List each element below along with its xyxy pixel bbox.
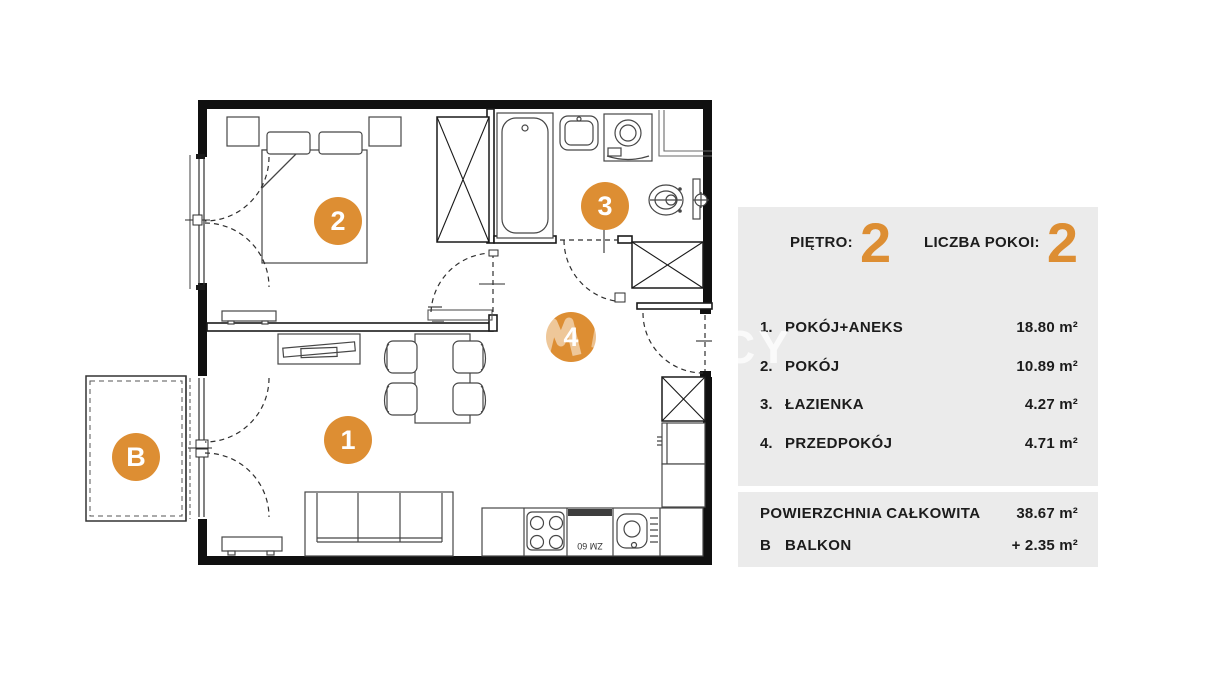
shaft-hall xyxy=(632,242,703,288)
living-room-door xyxy=(431,250,505,313)
wardrobe-closet xyxy=(437,117,489,242)
room-count-value: 2 xyxy=(1047,219,1078,267)
marker-room-2: 2 xyxy=(314,197,362,245)
svg-text:3: 3 xyxy=(597,191,612,221)
bathtub xyxy=(497,113,553,238)
room-row-1: 1. POKÓJ+ANEKS 18.80 m² xyxy=(760,308,1078,347)
fridge xyxy=(657,423,705,464)
floor-header: PIĘTRO: 2 xyxy=(790,219,891,267)
nightstands xyxy=(227,117,401,146)
bathroom-sink xyxy=(560,116,598,150)
shaft-kitchen xyxy=(662,377,705,421)
tall-cabinet xyxy=(662,464,705,507)
room-area: 18.80 m² xyxy=(1016,319,1078,336)
balcony-area: + 2.35 m² xyxy=(1012,537,1078,554)
total-area-row: POWIERZCHNIA CAŁKOWITA 38.67 m² xyxy=(760,497,1078,529)
svg-text:1: 1 xyxy=(340,425,355,455)
sofa xyxy=(305,492,453,556)
room-area: 10.89 m² xyxy=(1016,358,1078,375)
watermark-text: CY xyxy=(722,320,792,374)
floor-label: PIĘTRO: xyxy=(790,234,853,251)
rooms-list: 1. POKÓJ+ANEKS 18.80 m² 2. POKÓJ 10.89 m… xyxy=(760,308,1078,463)
room-row-2: 2. POKÓJ 10.89 m² xyxy=(760,347,1078,386)
balcony-letter: B xyxy=(760,537,785,554)
room-count-label: LICZBA POKOI: xyxy=(924,234,1040,251)
bench xyxy=(222,537,282,555)
total-area-value: 38.67 m² xyxy=(1016,505,1078,522)
marker-room-1: 1 xyxy=(324,416,372,464)
radiator xyxy=(222,311,276,324)
tv-cabinet xyxy=(278,334,360,364)
legend-panel: PIĘTRO: 2 LICZBA POKOI: 2 1. POKÓJ+ANEKS… xyxy=(738,207,1098,486)
summary-list: POWIERZCHNIA CAŁKOWITA 38.67 m² B BALKON… xyxy=(760,497,1078,561)
bedroom-window xyxy=(185,154,269,290)
room-number: 3. xyxy=(760,396,785,413)
room-name: ŁAZIENKA xyxy=(785,396,864,413)
room-count-header: LICZBA POKOI: 2 xyxy=(924,219,1078,267)
total-area-label: POWIERZCHNIA CAŁKOWITA xyxy=(760,505,980,522)
room-row-3: 3. ŁAZIENKA 4.27 m² xyxy=(760,385,1078,424)
entrance-door xyxy=(643,313,712,373)
svg-text:2: 2 xyxy=(330,206,345,236)
room-area: 4.27 m² xyxy=(1025,396,1078,413)
hall-sideboard xyxy=(428,307,492,321)
floor-value: 2 xyxy=(860,219,891,267)
toilet xyxy=(649,179,709,219)
balcony-row: B BALKON + 2.35 m² xyxy=(760,529,1078,561)
washing-machine xyxy=(604,114,652,161)
room-name: PRZEDPOKÓJ xyxy=(785,435,892,452)
bathroom-door xyxy=(560,227,626,302)
balcony-label: BALKON xyxy=(785,537,852,554)
summary-panel: POWIERZCHNIA CAŁKOWITA 38.67 m² B BALKON… xyxy=(738,492,1098,567)
marker-balcony: B xyxy=(112,433,160,481)
room-row-4: 4. PRZEDPOKÓJ 4.71 m² xyxy=(760,424,1078,463)
room-name: POKÓJ+ANEKS xyxy=(785,319,903,336)
room-number: 4. xyxy=(760,435,785,452)
balcony-door xyxy=(188,378,269,517)
floorplan-page: ZM 60 xyxy=(0,0,1207,687)
svg-text:B: B xyxy=(126,442,146,472)
room-area: 4.71 m² xyxy=(1025,435,1078,452)
room-name: POKÓJ xyxy=(785,358,840,375)
bed xyxy=(262,132,367,263)
marker-room-3: 3 xyxy=(581,182,629,230)
dishwasher-label: ZM 60 xyxy=(577,541,603,551)
